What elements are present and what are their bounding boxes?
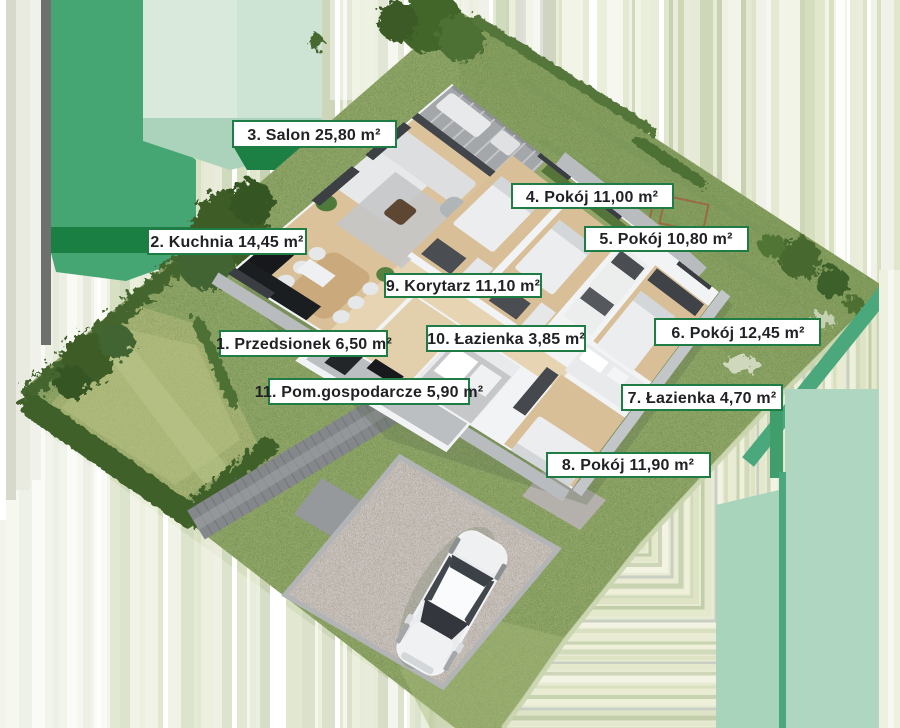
svg-text:8. Pokój 11,90 m²: 8. Pokój 11,90 m²: [562, 457, 694, 474]
svg-text:10. Łazienka 3,85 m²: 10. Łazienka 3,85 m²: [427, 331, 585, 348]
svg-text:1. Przedsionek 6,50 m²: 1. Przedsionek 6,50 m²: [216, 336, 392, 353]
svg-text:11. Pom.gospodarcze 5,90 m²: 11. Pom.gospodarcze 5,90 m²: [255, 384, 484, 401]
svg-text:4. Pokój 11,00 m²: 4. Pokój 11,00 m²: [526, 189, 658, 206]
svg-text:7. Łazienka 4,70 m²: 7. Łazienka 4,70 m²: [628, 390, 777, 407]
svg-text:9. Korytarz 11,10 m²: 9. Korytarz 11,10 m²: [386, 278, 540, 295]
svg-text:3. Salon 25,80 m²: 3. Salon 25,80 m²: [247, 127, 380, 144]
svg-text:2. Kuchnia 14,45 m²: 2. Kuchnia 14,45 m²: [150, 234, 303, 251]
svg-text:5. Pokój 10,80 m²: 5. Pokój 10,80 m²: [599, 231, 732, 248]
svg-text:6. Pokój 12,45 m²: 6. Pokój 12,45 m²: [671, 325, 804, 342]
